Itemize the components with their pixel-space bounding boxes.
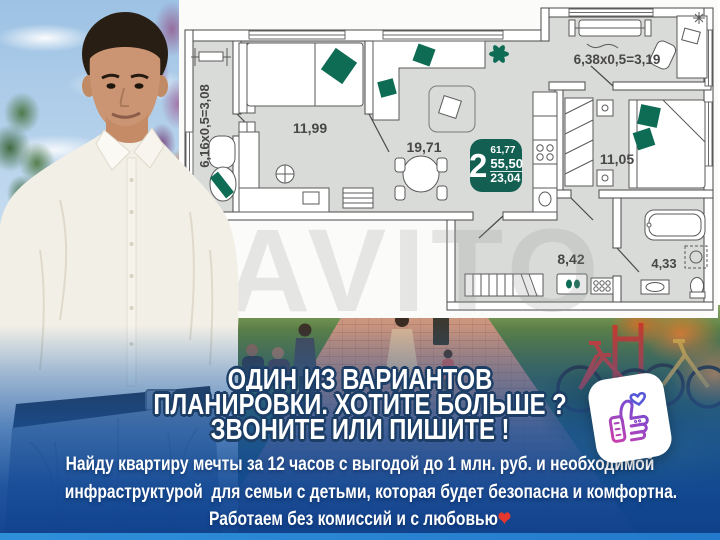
room-label-living: 19,71: [406, 139, 441, 155]
body-line-1: Найду квартиру мечты за 12 часов с выгод…: [65, 451, 655, 479]
room-label-bedroom-left: 11,99: [293, 120, 327, 136]
heart-icon: ❤: [498, 509, 511, 530]
apartment-badge: 2 61,77 55,50 23,04: [470, 139, 522, 192]
like-sticker: [586, 371, 674, 466]
room-label-bedroom-right: 11,05: [600, 151, 634, 167]
watermark: AVITO: [225, 212, 695, 330]
thumbs-up-icon: [602, 388, 658, 449]
bedroom-right-furniture: [565, 98, 705, 188]
bottom-accent-strip: [0, 533, 720, 540]
body-line-2: инфраструктурой для семьи с детьми, кото…: [65, 479, 655, 507]
badge-living-area: 55,50: [490, 157, 523, 173]
body-text-block: Найду квартиру мечты за 12 часов с выгод…: [0, 451, 720, 534]
badge-kitchen-area: 23,04: [490, 172, 520, 184]
balcony-right-dimension: 6,38x0,5=3,19: [574, 52, 661, 67]
badge-rooms-count: 2: [469, 149, 487, 182]
kitchen-units: [533, 92, 557, 212]
headline-line-3: ЗВОНИТЕ ИЛИ ПИШИТЕ !: [65, 418, 655, 443]
body-line-3: Работаем без комиссий и с любовью❤: [65, 506, 655, 534]
body-line-3-text: Работаем без комиссий и с любовью: [209, 509, 498, 530]
ad-canvas: 11,99 19,71 11,05 8,42 4,33 6,38x0,5=3,1…: [0, 0, 720, 540]
